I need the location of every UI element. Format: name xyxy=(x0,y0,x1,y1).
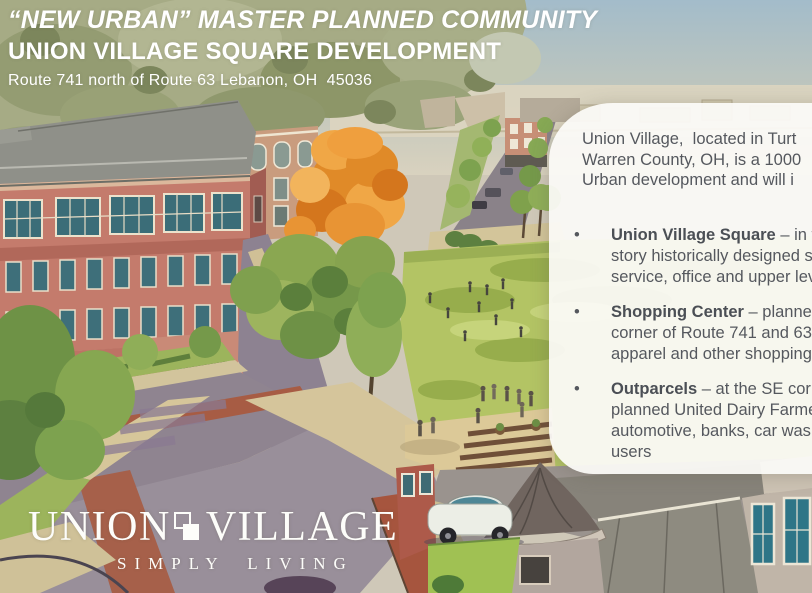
bullet-first-line: Union Village Square – in the xyxy=(611,225,812,246)
intro-line: Warren County, OH, is a 1000 xyxy=(582,150,801,171)
bullet-text-line: story historically designed str xyxy=(611,246,812,267)
bullet-item: • Shopping Center – planned 3 corner of … xyxy=(549,302,812,365)
bullet-text-line: users xyxy=(611,442,812,463)
header-tagline: “NEW URBAN” MASTER PLANNED COMMUNITY xyxy=(8,6,597,35)
header: “NEW URBAN” MASTER PLANNED COMMUNITY UNI… xyxy=(8,6,597,90)
bullet-text-line: apparel and other shopping c xyxy=(611,344,812,365)
bullet-title: Union Village Square xyxy=(611,226,776,244)
bullet-first-line: Outparcels – at the SE corner xyxy=(611,379,812,400)
bullet-first-line: Shopping Center – planned 3 xyxy=(611,302,812,323)
slide-root: “NEW URBAN” MASTER PLANNED COMMUNITY UNI… xyxy=(0,0,812,593)
bullet-title-suffix: – in the xyxy=(776,226,812,244)
bullet-title: Shopping Center xyxy=(611,303,744,321)
bullet-title-suffix: – at the SE corner xyxy=(697,380,812,398)
bullet-text-line: planned United Dairy Farmer xyxy=(611,400,812,421)
logo-tagline: SIMPLY LIVING xyxy=(117,554,398,574)
bullet-title-suffix: – planned 3 xyxy=(744,303,812,321)
info-panel: Union Village, located in Turt Warren Co… xyxy=(549,103,812,474)
logo-squares-icon xyxy=(173,509,204,545)
bullet-title: Outparcels xyxy=(611,380,697,398)
page-title: UNION VILLAGE SQUARE DEVELOPMENT xyxy=(8,38,597,66)
intro-line: Union Village, located in Turt xyxy=(582,129,801,150)
logo-wordmark: UNION VILLAGE xyxy=(28,505,398,549)
logo-square-filled-icon xyxy=(183,524,199,540)
logo-word-village: VILLAGE xyxy=(206,505,398,549)
bullet-item: • Outparcels – at the SE corner planned … xyxy=(549,379,812,463)
bullet-list: • Union Village Square – in the story hi… xyxy=(549,225,812,477)
bullet-marker: • xyxy=(574,379,580,400)
bullet-text-line: corner of Route 741 and 63. xyxy=(611,323,812,344)
intro-paragraph: Union Village, located in Turt Warren Co… xyxy=(582,129,801,191)
bullet-marker: • xyxy=(574,302,580,323)
bullet-text-line: automotive, banks, car wash a xyxy=(611,421,812,442)
union-village-logo: UNION VILLAGE SIMPLY LIVING xyxy=(28,505,398,574)
logo-word-union: UNION xyxy=(28,505,171,549)
bullet-item: • Union Village Square – in the story hi… xyxy=(549,225,812,288)
intro-line: Urban development and will i xyxy=(582,170,801,191)
bullet-marker: • xyxy=(574,225,580,246)
bullet-text-line: service, office and upper leve xyxy=(611,267,812,288)
header-address: Route 741 north of Route 63 Lebanon, OH … xyxy=(8,72,597,90)
